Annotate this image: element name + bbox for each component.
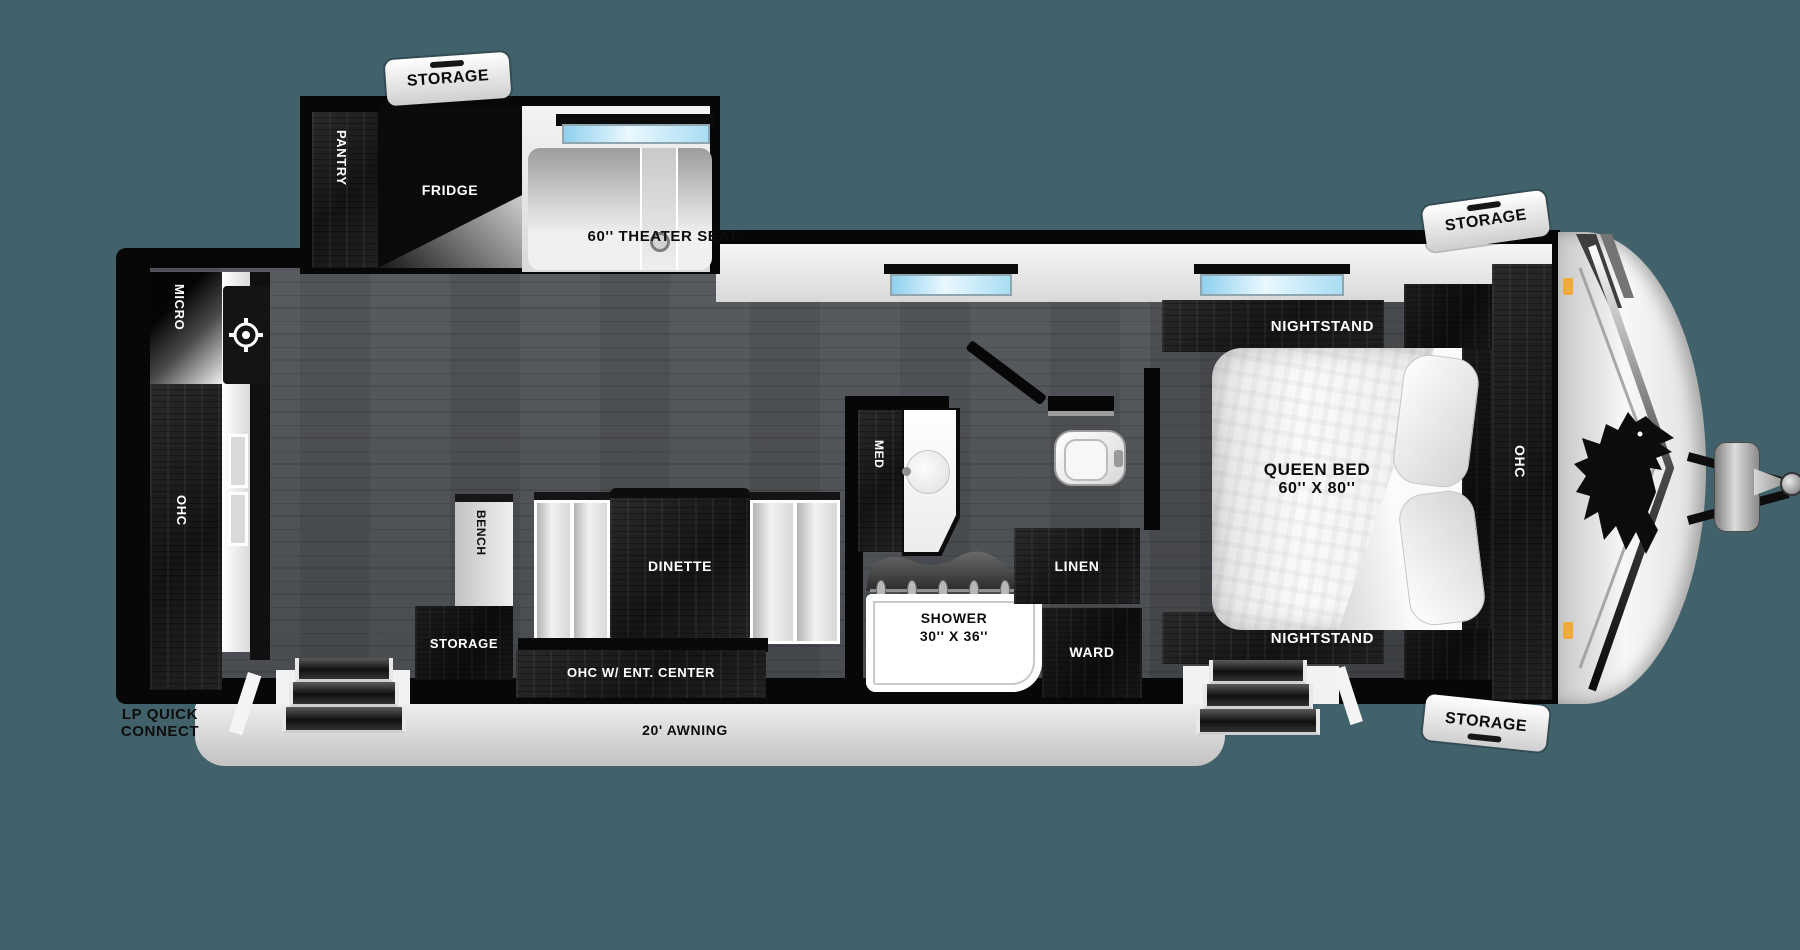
bath-sink-bowl — [906, 450, 950, 494]
dinette-cushion — [797, 503, 837, 641]
shower-rod — [870, 589, 1038, 592]
theater-seat — [528, 148, 712, 270]
hitch-ball — [1780, 472, 1800, 496]
dinette-bench-left — [534, 492, 610, 644]
bed-corner-cabinet-top — [1404, 284, 1494, 348]
queen-bed-label-1: QUEEN BED — [1212, 460, 1422, 480]
window-1 — [890, 274, 1012, 296]
ohc-rear-label: OHC — [174, 495, 189, 575]
window-trim-1 — [884, 264, 1018, 274]
toilet-bowl — [1064, 439, 1108, 481]
awning-label: 20' AWNING — [600, 722, 770, 738]
queen-bed-label-2: 60'' X 80'' — [1212, 480, 1422, 498]
marker-light — [1563, 278, 1573, 295]
window-2 — [1200, 274, 1344, 296]
dinette-cushion — [574, 503, 607, 641]
cooktop — [223, 286, 270, 384]
bench-label: BENCH — [474, 510, 488, 596]
ohc-ent-center-label: OHC W/ ENT. CENTER — [516, 665, 766, 680]
burner-icon — [229, 318, 263, 352]
dinette-cushion — [537, 503, 570, 641]
dinette-label: DINETTE — [610, 558, 750, 574]
propane-cover — [1714, 442, 1760, 532]
sink-basin-1 — [228, 434, 248, 488]
front-cap-graphics — [1558, 232, 1706, 704]
main-entry-steps — [282, 658, 406, 733]
nightstand-top-label: NIGHTSTAND — [1162, 318, 1374, 335]
fridge-label: FRIDGE — [378, 182, 522, 198]
slide-window — [562, 124, 710, 144]
bath-faucet-icon — [902, 467, 911, 476]
bear-logo-icon — [1574, 412, 1674, 554]
ward-label: WARD — [1042, 644, 1142, 660]
window-trim-2 — [1194, 264, 1350, 274]
storage-tag-label: STORAGE — [1444, 710, 1528, 737]
toilet — [1054, 430, 1126, 486]
lp-quick-connect-label-2: CONNECT — [108, 723, 212, 740]
shower-label-2: 30'' X 36'' — [866, 628, 1042, 644]
bath-wall-top-right-sill — [1048, 411, 1114, 416]
pantry-label: PANTRY — [334, 130, 349, 250]
dinette-bench-right — [750, 492, 840, 644]
theater-seat-label: 60'' THEATER SEAT — [565, 228, 761, 245]
fridge-highlight — [378, 195, 522, 268]
storage-compartment-label: STORAGE — [415, 636, 513, 651]
linen-label: LINEN — [1014, 558, 1140, 574]
shower-label-1: SHOWER — [866, 610, 1042, 626]
dinette-cushion — [753, 503, 793, 641]
floorplan-canvas: 20' AWNING PANTRY FRIDGE 60'' THEATER SE… — [0, 0, 1800, 950]
lp-quick-connect-label-1: LP QUICK — [108, 706, 212, 723]
nightstand-bottom-label: NIGHTSTAND — [1162, 630, 1374, 647]
bath-wall-right — [1144, 368, 1160, 530]
storage-tag-label: STORAGE — [406, 67, 489, 91]
storage-tag-label: STORAGE — [1444, 206, 1528, 235]
sink-basin-2 — [228, 492, 248, 546]
marker-light — [1563, 622, 1573, 639]
storage-tag-rear: STORAGE — [385, 52, 512, 107]
toilet-flush — [1114, 450, 1123, 467]
bath-wall-top-right — [1048, 396, 1114, 411]
microwave-label: MICRO — [172, 284, 187, 374]
ohc-bedroom-label: OHC — [1512, 445, 1528, 529]
med-label: MED — [872, 440, 886, 524]
pillow — [1396, 488, 1488, 628]
bedroom-entry-steps — [1196, 660, 1320, 735]
